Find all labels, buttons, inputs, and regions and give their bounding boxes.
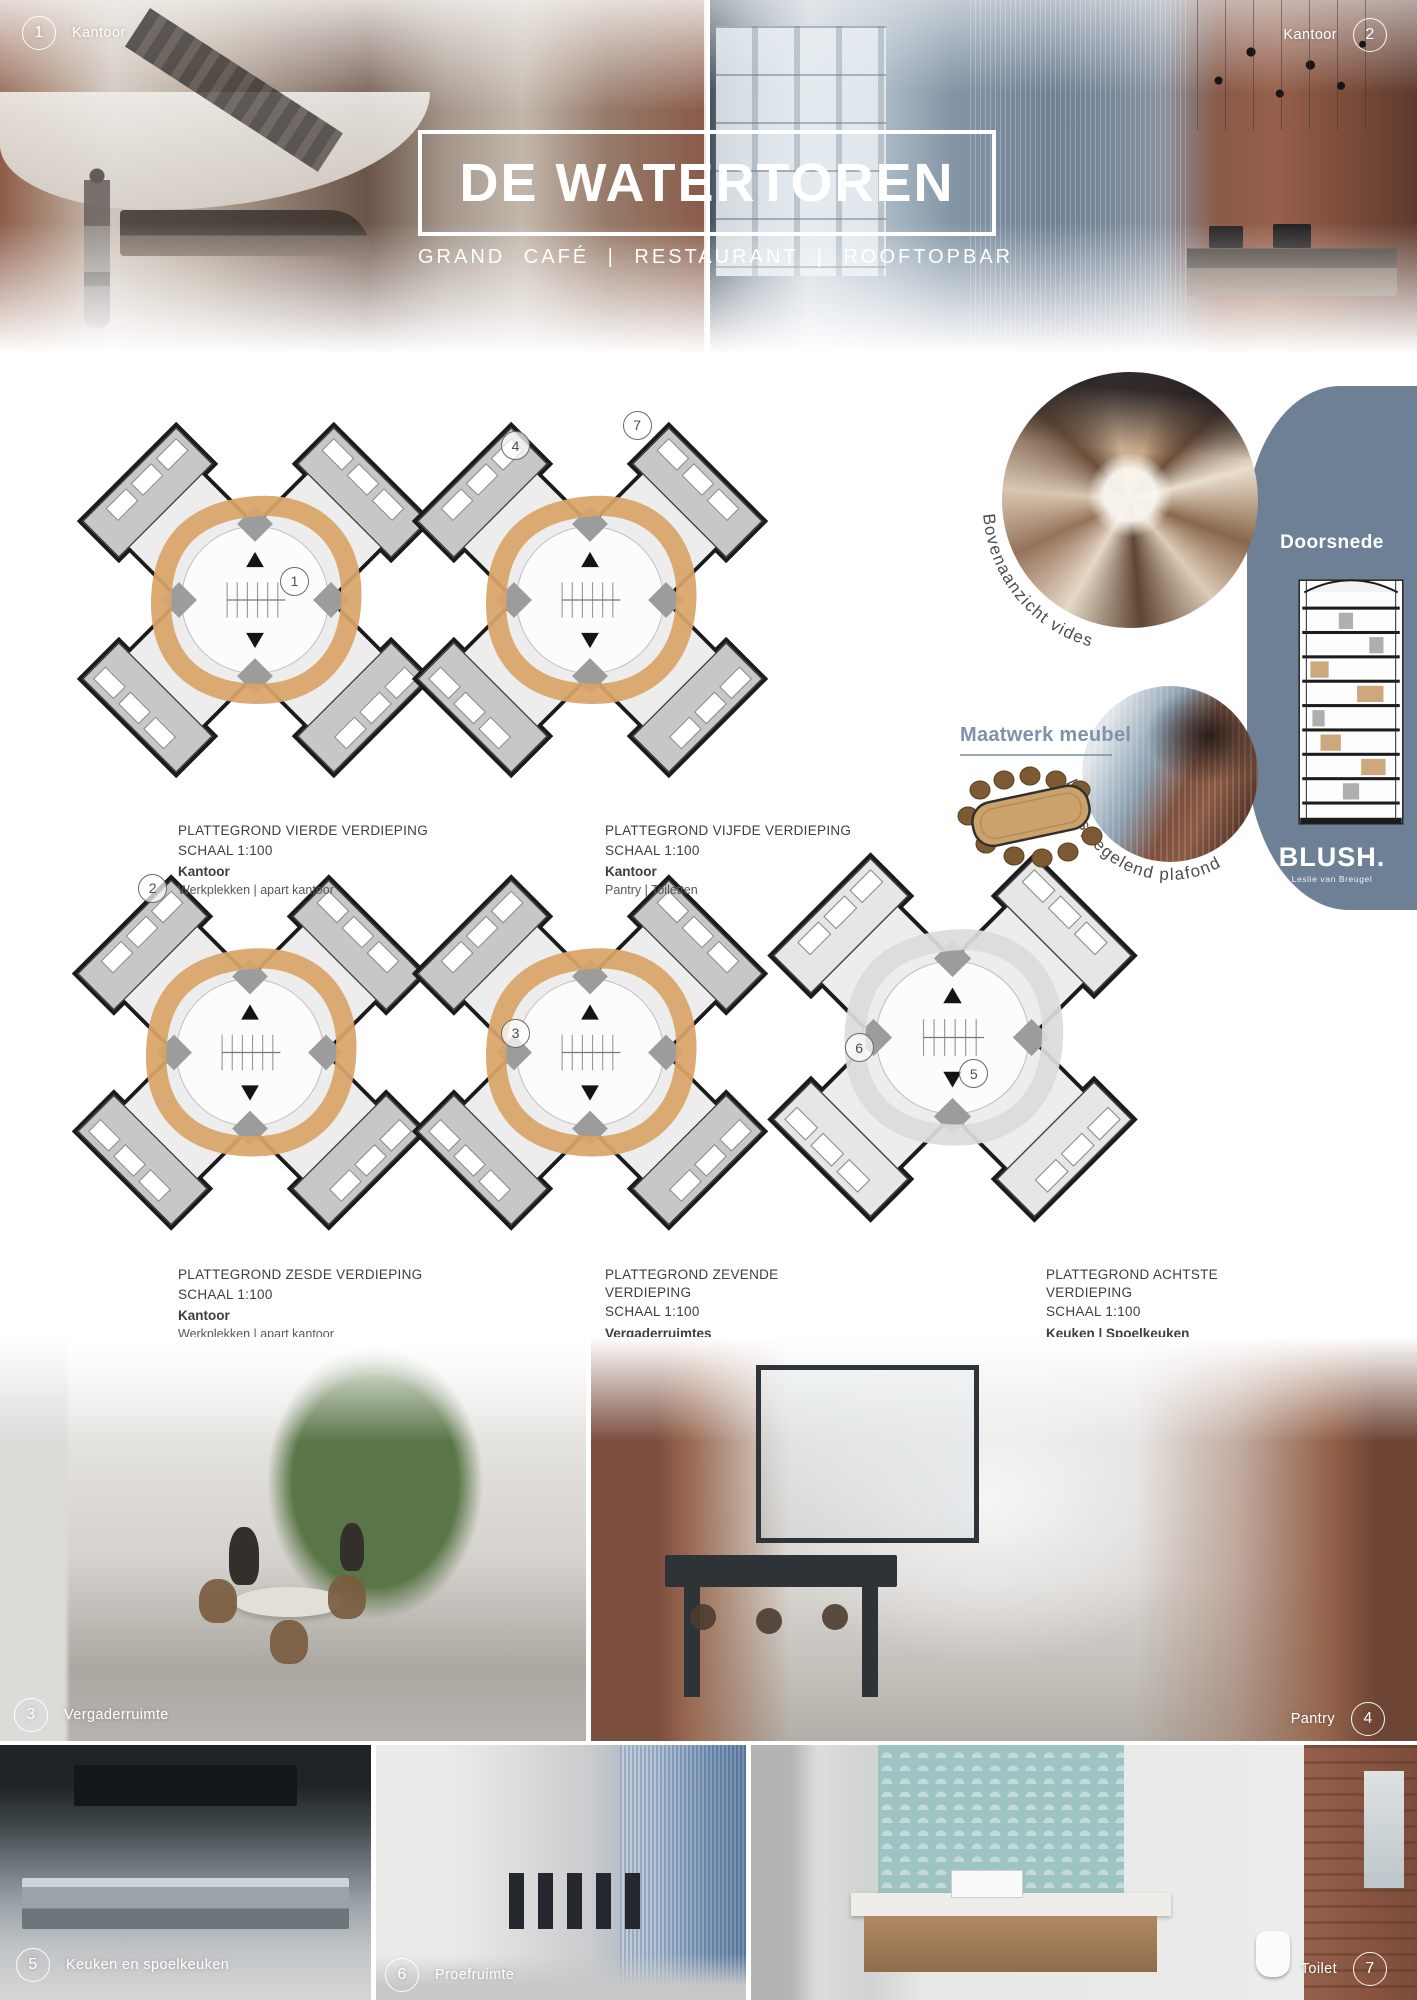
floorplan-zesde-verdieping: 2 [60,845,440,1260]
studio-logo-block: BLUSH. Leslie van Breugel [1247,842,1417,884]
number-circle: 6 [385,1958,419,1992]
number-circle: 2 [1353,18,1387,52]
label-underline [960,754,1112,756]
number-circle: 4 [1351,1702,1385,1736]
photo-marker-label: Pantry [1291,1711,1335,1727]
stool-shape [822,1604,848,1630]
plan-category: Kantoor [178,863,430,881]
rain-curtain-texture [970,0,1190,372]
circle-photo-vides [1002,372,1258,628]
glass-partition-shape [756,1365,979,1543]
chair-shape [328,1575,366,1619]
photo-marker-toilet: 7 Toilet [1301,1952,1387,1986]
plan-scale: SCHAAL 1:100 [178,842,430,860]
chair-row-shape [509,1873,642,1929]
floorplan-drawing [400,845,780,1260]
person-silhouette [340,1523,364,1571]
plan-title: PLATTEGROND ACHTSTE VERDIEPING [1046,1266,1298,1301]
plan-caption-vierde: PLATTEGROND VIERDE VERDIEPING SCHAAL 1:1… [178,822,430,898]
plan-category: Kantoor [178,1307,430,1325]
plan-details: Pantry | Toiletten [605,882,857,898]
number-circle: 3 [14,1698,48,1732]
wood-cabinet-shape [864,1916,1157,1972]
reception-counter-shape [120,210,370,256]
building-section-drawing [1297,566,1405,834]
plan-title: PLATTEGROND VIJFDE VERDIEPING [605,822,857,840]
photo-marker-label: Toilet [1301,1961,1337,1977]
photo-marker-keuken: 5 Keuken en spoelkeuken [16,1948,229,1982]
floorplan-vierde-verdieping: 1 [65,395,445,805]
balcony-shape [0,92,430,210]
plan-marker: 7 [623,411,652,440]
chair-shape [199,1579,237,1623]
accent-blob: Doorsnede BLUSH. [1247,386,1417,910]
plan-marker: 2 [138,874,167,903]
photo-vergaderruimte [0,1337,586,1741]
number-circle: 7 [1353,1952,1387,1986]
plan-caption-zevende: PLATTEGROND ZEVENDE VERDIEPING SCHAAL 1:… [605,1266,857,1343]
photo-marker-pantry: 4 Pantry [1291,1702,1385,1736]
plan-scale: SCHAAL 1:100 [178,1286,430,1304]
project-subtitle: GRAND CAFÉ | RESTAURANT | ROOFTOPBAR [418,246,996,269]
office-desk-shape [1187,232,1397,296]
title-box: DE WATERTOREN [418,130,996,236]
floorplan-vijfde-verdieping: 4 7 [400,395,780,805]
floorplan-zevende-verdieping: 3 [400,845,780,1260]
photo-marker-label: Proefruimte [435,1967,514,1983]
toilet-shape [1256,1931,1290,1977]
person-silhouette [229,1527,259,1585]
section-label: Doorsnede [1247,532,1417,554]
photo-marker-vergaderruimte: 3 Vergaderruimte [14,1698,169,1732]
person-silhouette [84,168,110,328]
photo-pantry [591,1337,1417,1741]
photo-marker-proefruimte: 6 Proefruimte [385,1958,514,1992]
floorplan-drawing [60,845,440,1260]
plan-caption-zesde: PLATTEGROND ZESDE VERDIEPING SCHAAL 1:10… [178,1266,430,1342]
hero-band: 1 Kantoor 2 Kantoor DE WATERTOREN GRAND … [0,0,1417,372]
photo-marker-label: Kantoor [72,25,126,41]
photo-marker-label: Kantoor [1283,27,1337,43]
plan-marker: 1 [280,567,309,596]
plan-marker: 6 [845,1033,874,1062]
stool-shape [756,1608,782,1634]
studio-author: Leslie van Breugel [1247,874,1417,884]
stainless-counter-shape [22,1878,348,1929]
plan-category: Kantoor [605,863,857,881]
plan-marker: 3 [501,1019,530,1048]
plan-title: PLATTEGROND ZESDE VERDIEPING [178,1266,430,1284]
plan-caption-vijfde: PLATTEGROND VIJFDE VERDIEPING SCHAAL 1:1… [605,822,857,898]
custom-furniture-label: Maatwerk meubel [960,724,1140,747]
floorplan-drawing [65,395,445,805]
photo-marker-kantoor-2: 2 Kantoor [1283,18,1387,52]
stool-shape [690,1604,716,1630]
plan-scale: SCHAAL 1:100 [605,842,857,860]
window-shape [1364,1771,1404,1888]
plan-title: PLATTEGROND VIERDE VERDIEPING [178,822,430,840]
bar-table-shape [665,1555,896,1587]
studio-logo: BLUSH. [1247,842,1417,873]
kitchen-hood-shape [74,1765,297,1806]
plan-marker: 4 [501,431,530,460]
plan-details: Werkplekken | apart kantoor [178,882,430,898]
photo-marker-label: Keuken en spoelkeuken [66,1957,229,1973]
plan-title: PLATTEGROND ZEVENDE VERDIEPING [605,1266,857,1301]
project-title: DE WATERTOREN [459,152,954,214]
conference-table-render [946,760,1116,872]
floorplan-drawing [400,395,780,805]
sink-shape [951,1870,1023,1898]
plan-scale: SCHAAL 1:100 [1046,1303,1298,1321]
number-circle: 1 [22,16,56,50]
chair-shape [270,1620,308,1664]
presentation-board: 1 Kantoor 2 Kantoor DE WATERTOREN GRAND … [0,0,1417,2000]
plan-scale: SCHAAL 1:100 [605,1303,857,1321]
number-circle: 5 [16,1948,50,1982]
photo-marker-kantoor-1: 1 Kantoor [22,16,126,50]
photo-marker-label: Vergaderruimte [64,1707,169,1723]
